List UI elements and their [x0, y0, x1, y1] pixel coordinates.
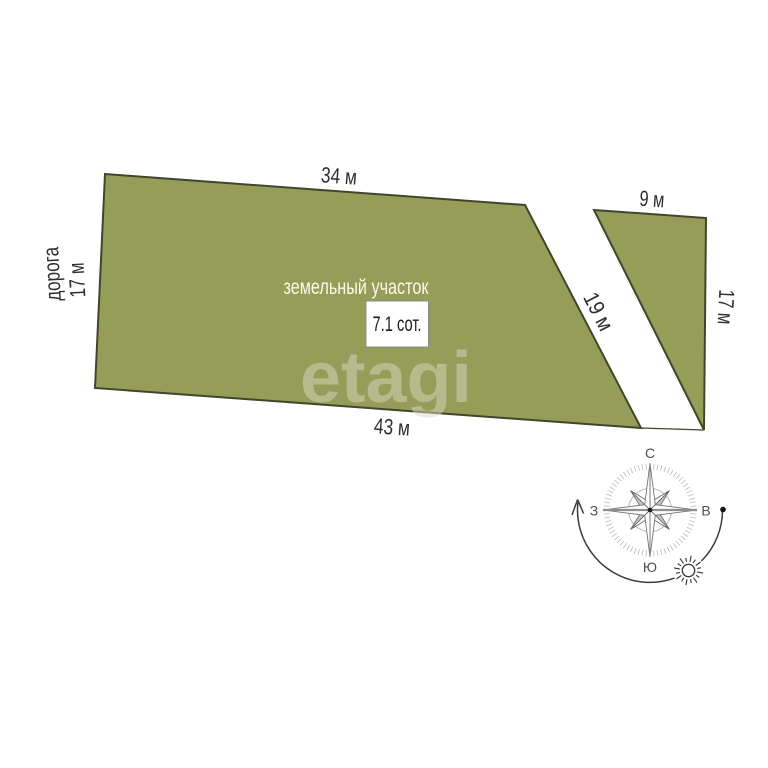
svg-text:дорога: дорога	[38, 246, 66, 302]
svg-text:etagi: etagi	[300, 338, 472, 418]
svg-text:З: З	[590, 503, 598, 519]
svg-text:В: В	[701, 503, 710, 519]
svg-text:17 м: 17 м	[713, 289, 740, 325]
svg-text:17 м: 17 м	[64, 262, 91, 298]
svg-text:9 м: 9 м	[639, 186, 666, 213]
svg-text:43 м: 43 м	[373, 413, 411, 441]
svg-text:земельный участок: земельный участок	[284, 275, 429, 299]
svg-text:7.1 сот.: 7.1 сот.	[373, 312, 422, 336]
svg-text:Ю: Ю	[643, 559, 657, 575]
svg-text:С: С	[645, 445, 655, 461]
svg-text:34 м: 34 м	[320, 162, 358, 190]
